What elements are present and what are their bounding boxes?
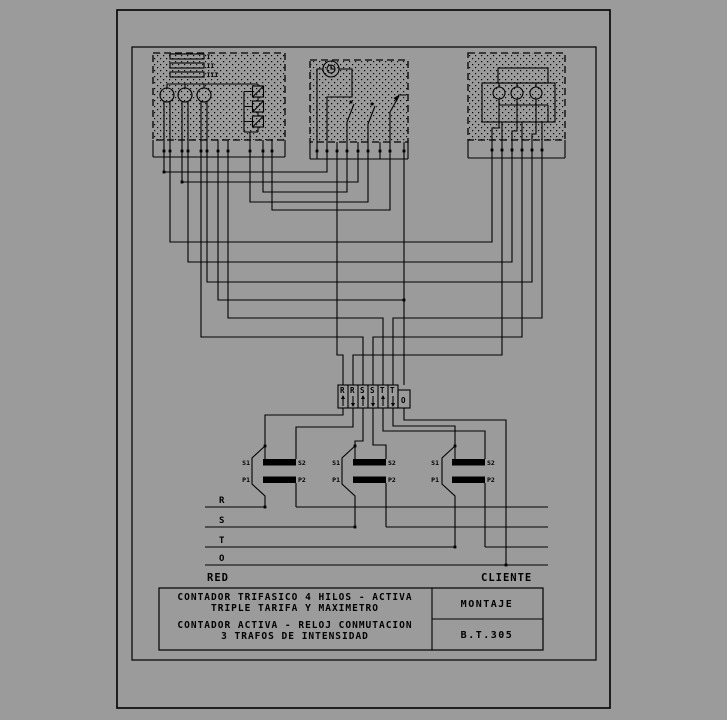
bus-label-s: S bbox=[219, 516, 225, 526]
maximeter-box bbox=[468, 53, 565, 158]
cell-arrow-down-2 bbox=[351, 403, 355, 407]
ct3-s2-label: S2 bbox=[487, 459, 495, 467]
junction-dot bbox=[206, 150, 209, 153]
cell-label-3: S bbox=[360, 386, 365, 395]
meter-box-outline bbox=[153, 53, 285, 140]
ct1-primary-bar bbox=[263, 477, 296, 484]
junction-dot bbox=[181, 181, 184, 184]
montaje-label: MONTAJE bbox=[461, 599, 514, 610]
field-wires bbox=[164, 157, 542, 385]
cell-label-5: T bbox=[380, 386, 385, 395]
junction-dot bbox=[403, 299, 406, 302]
junction-dot bbox=[491, 149, 494, 152]
meter-box: I II III bbox=[153, 53, 285, 157]
junction-dot bbox=[163, 150, 166, 153]
register-label-3: III bbox=[207, 71, 219, 79]
ct-3: S1 S2 P1 P2 bbox=[431, 446, 495, 547]
junction-dot bbox=[264, 445, 267, 448]
ct1-s1-label: S1 bbox=[242, 459, 250, 467]
clock-box bbox=[310, 60, 408, 159]
junction-dot bbox=[227, 150, 230, 153]
title-line-1: CONTADOR TRIFASICO 4 HILOS - ACTIVA bbox=[177, 592, 412, 603]
junction-dot bbox=[354, 445, 357, 448]
bus-label-r: R bbox=[219, 496, 225, 506]
ct2-s2-label: S2 bbox=[388, 459, 396, 467]
junction-dot bbox=[389, 150, 392, 153]
junction-dot bbox=[169, 150, 172, 153]
bus-lines: R S T O RED CLIENTE bbox=[205, 496, 548, 584]
ct2-s1-label: S1 bbox=[332, 459, 340, 467]
cell-arrow-up-3 bbox=[361, 395, 365, 399]
junction-dot bbox=[249, 150, 252, 153]
junction-dot bbox=[271, 150, 274, 153]
cell-label-4: S bbox=[370, 386, 375, 395]
register-label-2: II bbox=[207, 62, 215, 70]
ct1-s2-label: S2 bbox=[298, 459, 306, 467]
junction-dot bbox=[454, 445, 457, 448]
junction-dot bbox=[371, 103, 374, 106]
junction-dot bbox=[316, 150, 319, 153]
bus-label-t: T bbox=[219, 536, 225, 546]
ct3-s1-label: S1 bbox=[431, 459, 439, 467]
ct1-p1-label: P1 bbox=[242, 476, 250, 484]
ct2-secondary-bar bbox=[353, 459, 386, 466]
junction-dot bbox=[262, 150, 265, 153]
title-line-2: TRIPLE TARIFA Y MAXIMETRO bbox=[211, 603, 379, 614]
title-block: CONTADOR TRIFASICO 4 HILOS - ACTIVA TRIP… bbox=[159, 588, 543, 650]
junction-dot bbox=[181, 150, 184, 153]
junction-dot bbox=[531, 149, 534, 152]
junction-dot bbox=[336, 150, 339, 153]
cell-arrow-down-6 bbox=[391, 403, 395, 407]
cell-label-6: T bbox=[390, 386, 395, 395]
title-line-3: CONTADOR ACTIVA - RELOJ CONMUTACION bbox=[177, 620, 412, 631]
ct2-primary-bypass bbox=[342, 446, 355, 527]
cell-label-1: R bbox=[340, 386, 345, 395]
register-label-1: I bbox=[207, 53, 211, 61]
meter-terminal-strip bbox=[153, 140, 285, 157]
ct1-p2-label: P2 bbox=[298, 476, 306, 484]
ct2-primary-bar bbox=[353, 477, 386, 484]
junction-dot bbox=[379, 150, 382, 153]
wiring-diagram: I II III bbox=[0, 0, 727, 720]
ref-label: B.T.305 bbox=[461, 630, 514, 641]
cliente-label: CLIENTE bbox=[481, 572, 532, 584]
junction-dot bbox=[354, 526, 357, 529]
junction-dot bbox=[501, 149, 504, 152]
ct2-p1-label: P1 bbox=[332, 476, 340, 484]
ct3-secondary-bar bbox=[452, 459, 485, 466]
ct3-primary-bar bbox=[452, 477, 485, 484]
bus-label-o: O bbox=[219, 554, 225, 564]
title-line-4: 3 TRAFOS DE INTENSIDAD bbox=[221, 631, 369, 642]
maximeter-terminal-strip bbox=[468, 140, 565, 158]
cell-arrow-down-4 bbox=[371, 403, 375, 407]
ct2-p2-label: P2 bbox=[388, 476, 396, 484]
junction-dot bbox=[326, 150, 329, 153]
junction-dot bbox=[350, 101, 353, 104]
cell-label-2: R bbox=[350, 386, 355, 395]
ct3-p1-label: P1 bbox=[431, 476, 439, 484]
junction-dot bbox=[511, 149, 514, 152]
junction-dot bbox=[403, 150, 406, 153]
ct3-p2-label: P2 bbox=[487, 476, 495, 484]
junction-dot bbox=[217, 150, 220, 153]
junction-dot bbox=[541, 149, 544, 152]
red-label: RED bbox=[207, 572, 229, 584]
cell-arrow-up-1 bbox=[341, 395, 345, 399]
test-terminal-block: R R S S T T O bbox=[338, 385, 410, 408]
junction-dot bbox=[187, 150, 190, 153]
ct1-secondary-bar bbox=[263, 459, 296, 466]
junction-dot bbox=[357, 150, 360, 153]
clock-box-outline bbox=[310, 60, 408, 142]
junction-dot bbox=[264, 506, 267, 509]
cell-arrow-up-5 bbox=[381, 395, 385, 399]
junction-dot bbox=[454, 546, 457, 549]
junction-dot bbox=[521, 149, 524, 152]
junction-dot bbox=[200, 150, 203, 153]
junction-dot bbox=[346, 150, 349, 153]
junction-dot bbox=[163, 171, 166, 174]
junction-dot bbox=[505, 564, 508, 567]
cell-label-7: O bbox=[401, 396, 406, 405]
junction-dot bbox=[367, 150, 370, 153]
